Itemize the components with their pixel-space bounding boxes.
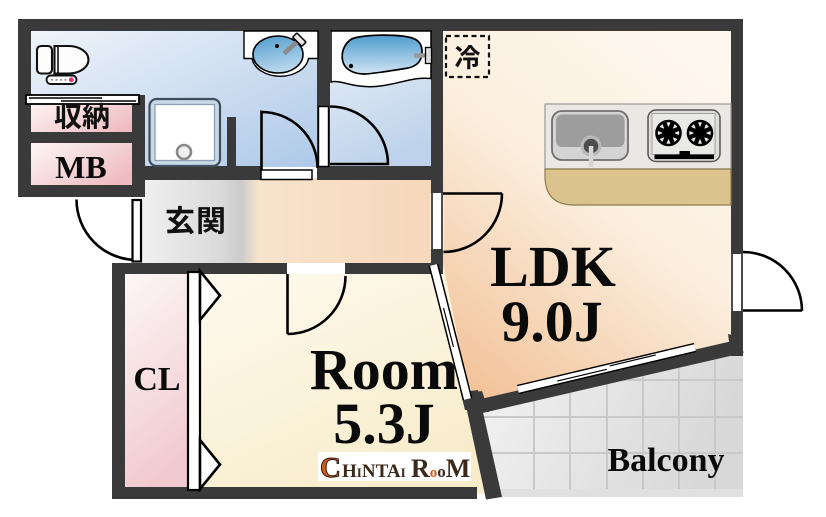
- svg-text:MB: MB: [55, 149, 107, 185]
- svg-text:5.3J: 5.3J: [333, 391, 435, 456]
- svg-text:Balcony: Balcony: [607, 442, 724, 479]
- svg-text:HINTAI: HINTAI: [342, 461, 406, 482]
- svg-text:CL: CL: [133, 361, 180, 398]
- svg-text:C: C: [320, 452, 341, 484]
- svg-text:9.0J: 9.0J: [501, 289, 603, 354]
